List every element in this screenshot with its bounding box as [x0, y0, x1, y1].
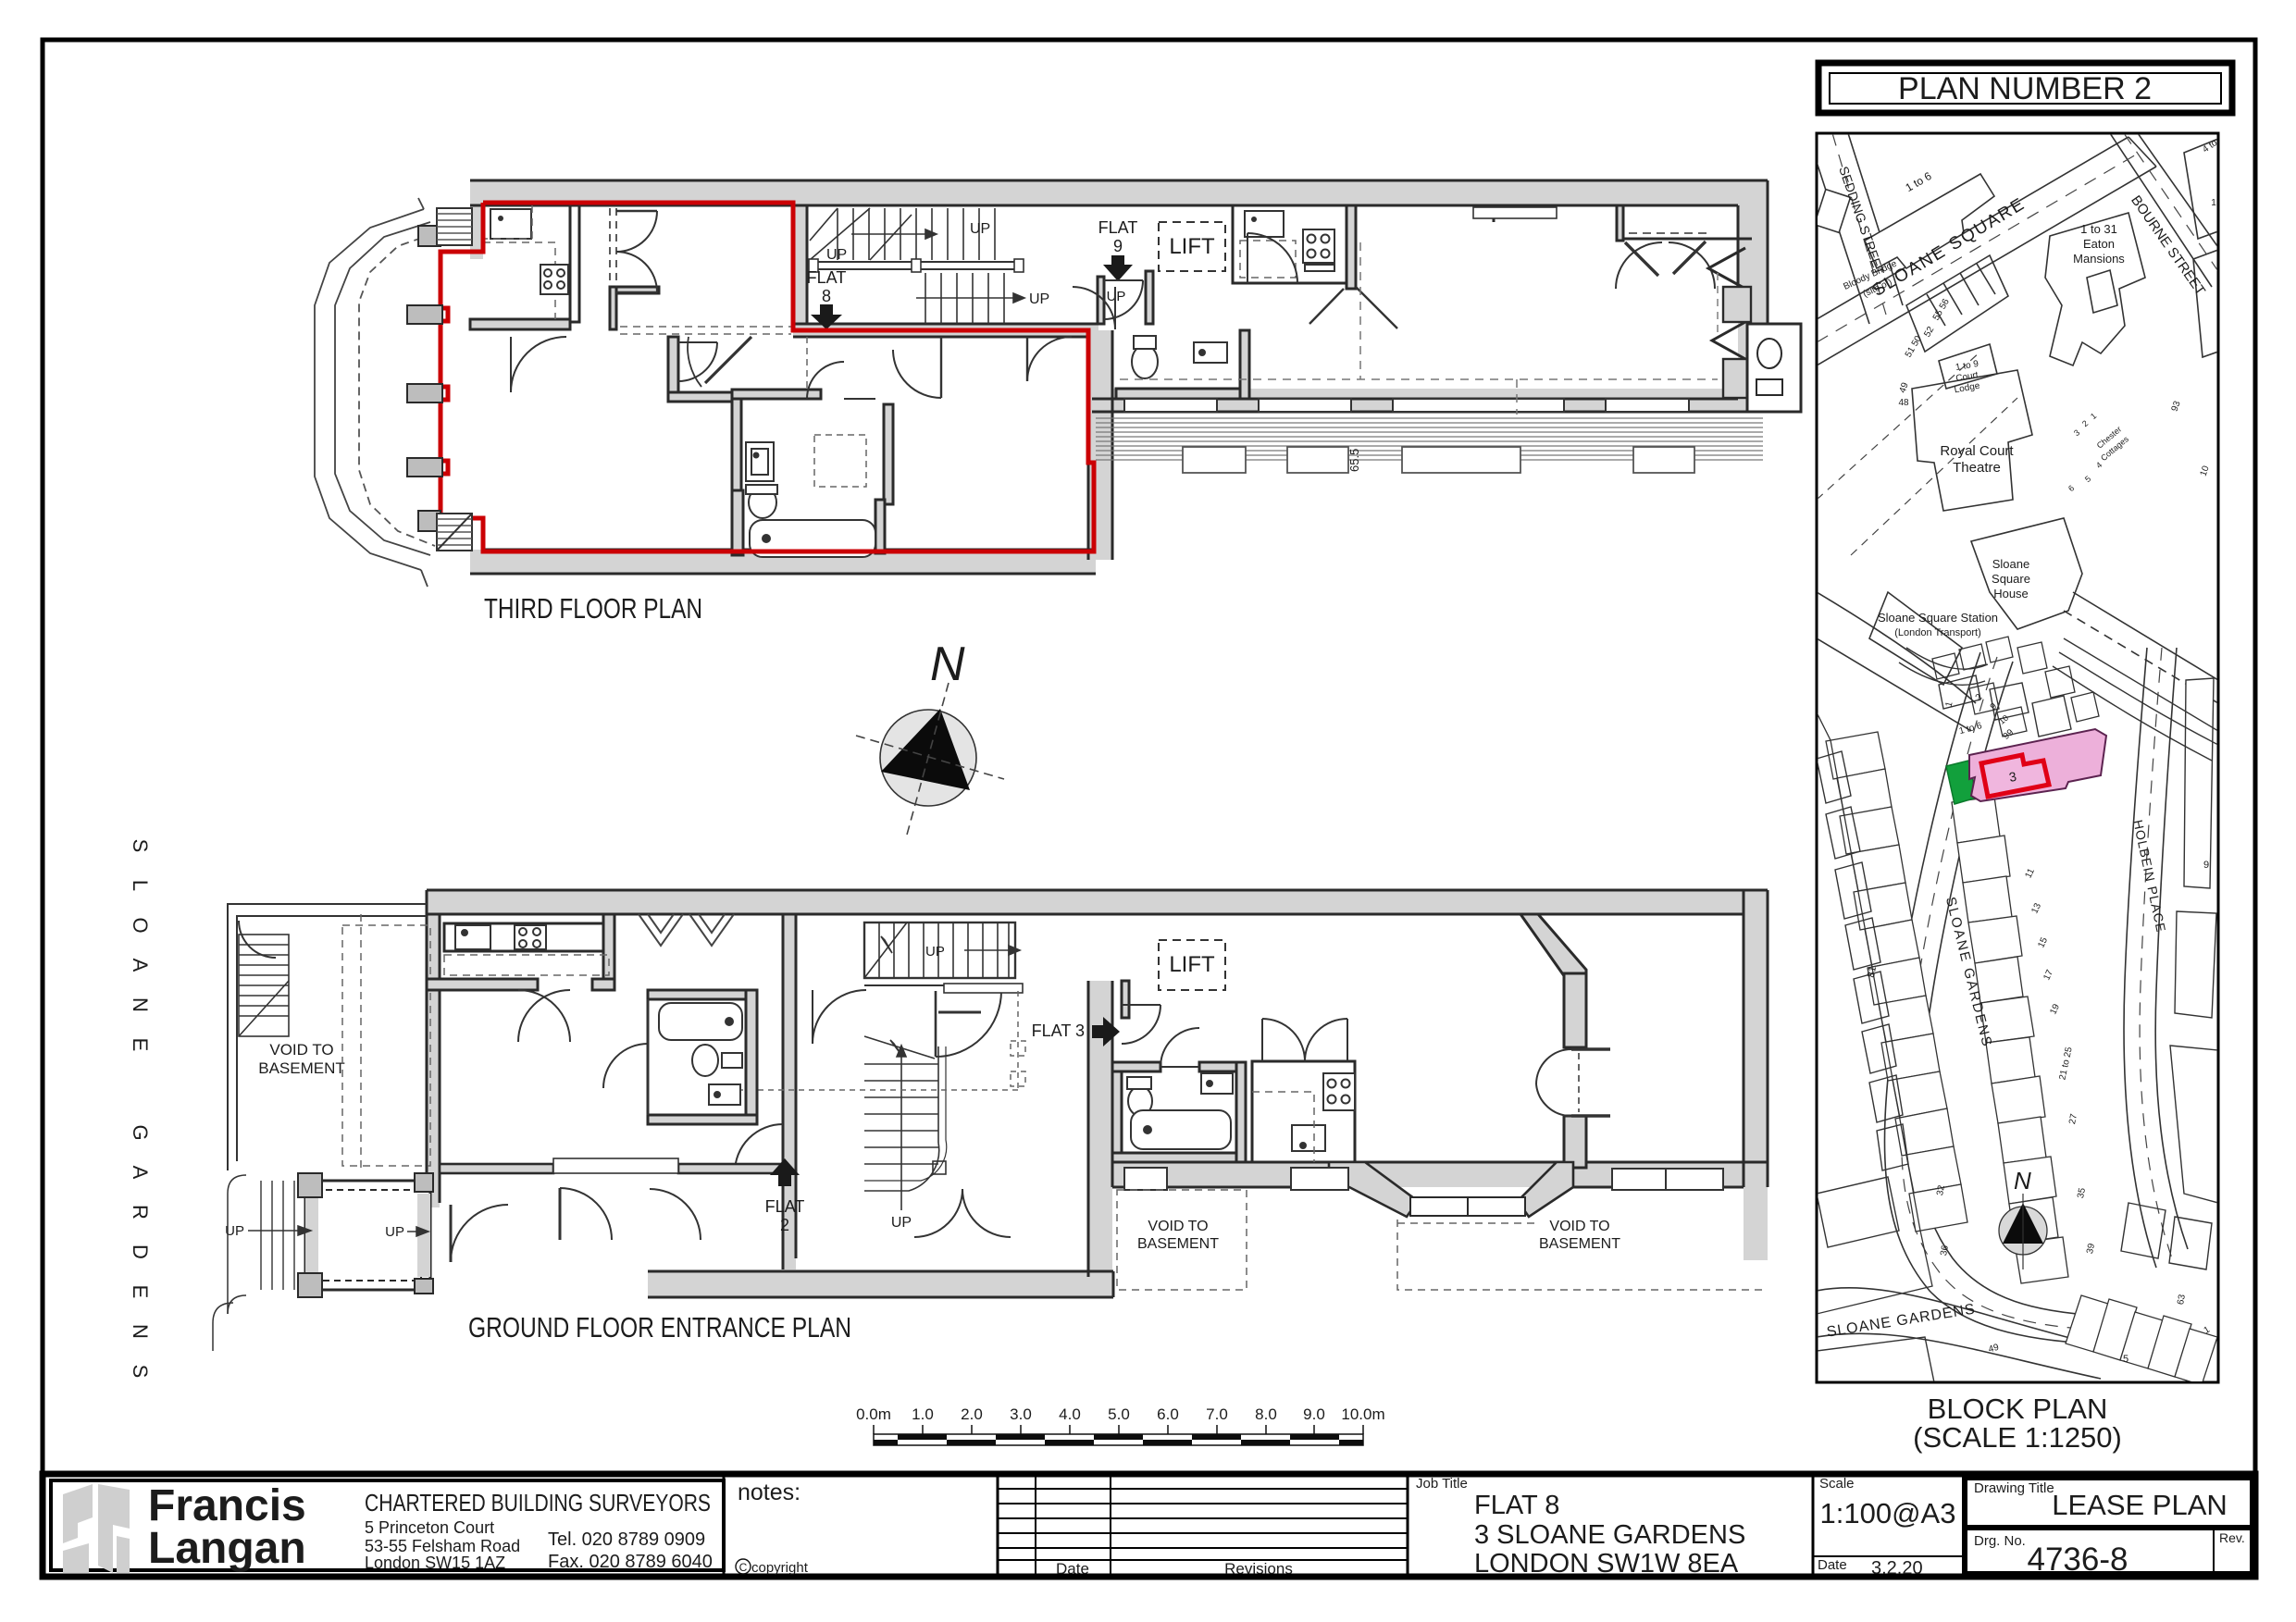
svg-text:copyright: copyright: [751, 1560, 809, 1576]
svg-text:Theatre: Theatre: [1953, 460, 2001, 476]
svg-text:53-55 Felsham Road: 53-55 Felsham Road: [365, 1537, 520, 1555]
svg-text:BLOCK PLAN: BLOCK PLAN: [1928, 1393, 2108, 1425]
svg-text:UP: UP: [891, 1215, 912, 1231]
svg-text:Fax. 020 8789 6040: Fax. 020 8789 6040: [548, 1552, 713, 1572]
svg-text:8: 8: [822, 287, 831, 305]
svg-text:BASEMENT: BASEMENT: [258, 1059, 345, 1077]
svg-text:0.0m: 0.0m: [856, 1405, 891, 1423]
svg-text:House: House: [1993, 587, 2029, 601]
svg-text:R: R: [129, 1205, 152, 1220]
svg-text:LEASE PLAN: LEASE PLAN: [2052, 1489, 2228, 1521]
svg-text:FLAT 3: FLAT 3: [1032, 1021, 1085, 1040]
svg-text:5.0: 5.0: [1108, 1405, 1130, 1423]
svg-text:8.0: 8.0: [1255, 1405, 1277, 1423]
svg-text:Drawing Title: Drawing Title: [1974, 1480, 2054, 1496]
svg-text:PLAN NUMBER 2: PLAN NUMBER 2: [1898, 71, 2152, 106]
svg-text:N: N: [930, 638, 965, 691]
svg-text:FLAT: FLAT: [1098, 218, 1138, 237]
svg-text:Sloane: Sloane: [1992, 557, 2029, 571]
svg-text:65.5: 65.5: [1347, 449, 1361, 472]
svg-text:Scale: Scale: [1819, 1476, 1855, 1492]
svg-text:O: O: [129, 917, 152, 933]
svg-text:1.0: 1.0: [912, 1405, 934, 1423]
svg-text:5: 5: [2123, 1354, 2128, 1365]
svg-text:D: D: [129, 1244, 152, 1259]
svg-text:FLAT: FLAT: [765, 1197, 805, 1216]
svg-text:VOID TO: VOID TO: [1148, 1219, 1208, 1234]
svg-text:LONDON SW1W 8EA: LONDON SW1W 8EA: [1474, 1549, 1739, 1579]
svg-text:FLAT: FLAT: [807, 268, 847, 287]
svg-text:G: G: [129, 1124, 152, 1140]
svg-text:Langan: Langan: [148, 1524, 306, 1573]
svg-text:1:100@A3: 1:100@A3: [1820, 1497, 1956, 1529]
svg-text:UP: UP: [925, 944, 945, 960]
svg-text:A: A: [129, 959, 152, 972]
svg-text:9: 9: [2203, 860, 2209, 871]
svg-text:9: 9: [1113, 237, 1123, 255]
svg-text:N: N: [129, 1324, 152, 1339]
svg-text:Eaton: Eaton: [2083, 237, 2115, 251]
svg-text:London SW15 1AZ: London SW15 1AZ: [365, 1554, 505, 1572]
svg-text:(London Transport): (London Transport): [1894, 627, 1981, 638]
svg-text:2: 2: [780, 1216, 789, 1234]
svg-text:UP: UP: [970, 221, 990, 237]
svg-text:N: N: [129, 997, 152, 1012]
svg-text:1: 1: [2211, 198, 2216, 208]
svg-text:E: E: [129, 1285, 152, 1299]
svg-text:4.0: 4.0: [1059, 1405, 1081, 1423]
svg-text:VOID TO: VOID TO: [1549, 1219, 1609, 1234]
svg-text:1 to 31: 1 to 31: [2080, 222, 2117, 236]
svg-text:UP: UP: [826, 247, 847, 263]
svg-text:Royal Court: Royal Court: [1940, 443, 2014, 459]
svg-text:9.0: 9.0: [1303, 1405, 1325, 1423]
svg-text:Date: Date: [1818, 1557, 1847, 1573]
svg-text:LIFT: LIFT: [1169, 234, 1215, 259]
svg-text:Square: Square: [1992, 572, 2030, 586]
svg-text:UP: UP: [1029, 291, 1049, 307]
svg-text:UP: UP: [385, 1224, 404, 1240]
svg-text:3.0: 3.0: [1010, 1405, 1032, 1423]
svg-text:S: S: [129, 839, 152, 853]
svg-text:GROUND FLOOR ENTRANCE PLAN: GROUND FLOOR ENTRANCE PLAN: [468, 1311, 851, 1343]
svg-text:N: N: [2014, 1167, 2031, 1195]
svg-text:Mansions: Mansions: [2073, 252, 2125, 266]
svg-text:FLAT 8: FLAT 8: [1474, 1491, 1559, 1520]
svg-text:LIFT: LIFT: [1169, 952, 1215, 977]
svg-text:(SCALE 1:1250): (SCALE 1:1250): [1913, 1421, 2122, 1454]
svg-text:6.0: 6.0: [1157, 1405, 1179, 1423]
svg-text:CHARTERED BUILDING SURVEYORS: CHARTERED BUILDING SURVEYORS: [365, 1489, 711, 1517]
svg-text:E: E: [129, 1038, 152, 1052]
svg-text:notes:: notes:: [738, 1480, 800, 1505]
svg-text:7.0: 7.0: [1206, 1405, 1228, 1423]
svg-text:Rev.: Rev.: [2219, 1530, 2245, 1545]
svg-text:BASEMENT: BASEMENT: [1539, 1236, 1620, 1252]
svg-text:S: S: [129, 1365, 152, 1379]
svg-text:10.0m: 10.0m: [1341, 1405, 1384, 1423]
svg-text:C: C: [739, 1561, 748, 1574]
svg-text:5 Princeton Court: 5 Princeton Court: [365, 1518, 494, 1537]
svg-text:Tel. 020 8789 0909: Tel. 020 8789 0909: [548, 1529, 705, 1550]
svg-text:L: L: [129, 880, 152, 891]
svg-text:VOID TO: VOID TO: [269, 1041, 333, 1059]
svg-text:Sloane Square Station: Sloane Square Station: [1878, 611, 1998, 625]
svg-text:48: 48: [1898, 398, 1909, 408]
svg-text:A: A: [129, 1166, 152, 1180]
svg-text:4736-8: 4736-8: [2028, 1542, 2128, 1578]
svg-text:Job Title: Job Title: [1416, 1476, 1468, 1492]
svg-text:Drg. No.: Drg. No.: [1974, 1533, 2026, 1549]
svg-text:THIRD FLOOR PLAN: THIRD FLOOR PLAN: [484, 592, 702, 625]
svg-text:BASEMENT: BASEMENT: [1137, 1236, 1219, 1252]
svg-text:81: 81: [1866, 965, 1879, 978]
svg-text:2.0: 2.0: [961, 1405, 983, 1423]
svg-text:3 SLOANE GARDENS: 3 SLOANE GARDENS: [1474, 1520, 1745, 1550]
